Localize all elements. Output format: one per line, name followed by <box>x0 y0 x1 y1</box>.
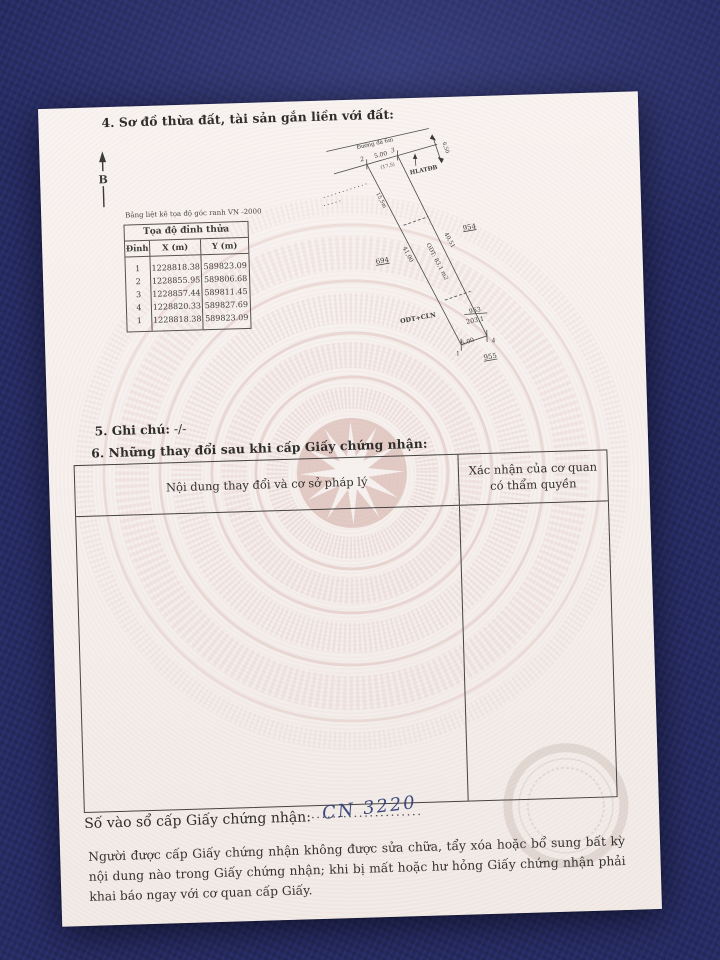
changes-table-body <box>76 501 617 812</box>
changes-table: Nội dung thay đổi và cơ sở pháp lý Xác n… <box>74 449 618 813</box>
x-column: 1228818.38 1228855.95 1228857.44 1228820… <box>150 255 203 330</box>
diagram-labels: Đường đá 6m 2 5.00 3 (17,5) 6,50 HLATĐB … <box>356 133 498 365</box>
left-boundary-length: 41,00 <box>401 246 414 264</box>
parcel-area-main: ODT: 83,1 m2 <box>424 242 448 281</box>
vertex-label-2: 2 <box>359 156 366 164</box>
coord-table-body: 1 2 3 4 1 1228818.38 1228855.95 1228857.… <box>125 254 250 332</box>
vertex-label-3: 3 <box>390 147 396 155</box>
certificate-page: 4. Sơ đồ thừa đất, tài sản gắn liền với … <box>38 91 662 926</box>
coordinate-table: Tọa độ đỉnh thửa Đỉnh X (m) Y (m) 1 2 3 … <box>123 221 251 333</box>
section5-value: -/- <box>174 422 187 436</box>
coord-cell: 4 <box>127 301 151 315</box>
north-label: B <box>98 173 108 186</box>
coord-cell: 589823.09 <box>203 311 250 325</box>
bottom-dimension: 5.00 <box>460 336 475 347</box>
vertex-label-4: 4 <box>490 337 496 345</box>
vertex-label-1: 1 <box>455 350 460 358</box>
photo-canvas: { "page": { "section4": { "title": "4. S… <box>0 0 720 960</box>
right-boundary-length: 40,51 <box>442 232 455 249</box>
top-dimension-paren: (17,5) <box>380 161 396 171</box>
parcel-area: 203,1 <box>466 316 485 326</box>
corridor-label: HLATĐB <box>409 165 438 177</box>
section5-row: 5. Ghi chú: -/- <box>94 421 186 439</box>
neighbor-parcel-bottom: 955 <box>483 352 498 362</box>
parcel-diagram: Đường đá 6m 2 5.00 3 (17,5) 6,50 HLATĐB … <box>318 111 526 379</box>
changes-col-confirm-header: Xác nhận của cơ quan có thẩm quyền <box>458 450 607 504</box>
coord-cell: 1228818.38 <box>152 312 202 326</box>
changes-col-confirm-line2: có thẩm quyền <box>490 476 577 494</box>
neighbor-parcel-left: 694 <box>375 256 390 266</box>
north-arrow-icon: B <box>92 149 114 212</box>
neighbor-parcel-right: 954 <box>462 222 477 232</box>
changes-col-content-label: Nội dung thay đổi và cơ sở pháp lý <box>166 475 368 496</box>
changes-body-confirm-cell <box>460 501 617 800</box>
coord-cell: 1 <box>127 314 151 328</box>
section5-label: 5. Ghi chú: <box>94 421 170 438</box>
land-use-label: ODT+CLN <box>400 312 437 326</box>
coord-cell: 2 <box>126 275 150 289</box>
vertex-column: 1 2 3 4 1 <box>125 257 152 332</box>
diagram-arrowheads <box>412 134 444 164</box>
changes-body-content-cell <box>76 506 469 812</box>
road-label: Đường đá 6m <box>356 136 395 151</box>
col-header-y: Y (m) <box>201 238 248 255</box>
col-header-vertex: Đỉnh <box>125 241 150 258</box>
corridor-width: 6,50 <box>441 141 450 154</box>
y-column: 589823.09 589806.68 589811.45 589827.69 … <box>201 254 250 329</box>
coord-cell: 3 <box>126 288 150 302</box>
col-header-x: X (m) <box>150 239 201 257</box>
coord-cell: 1 <box>126 262 150 276</box>
